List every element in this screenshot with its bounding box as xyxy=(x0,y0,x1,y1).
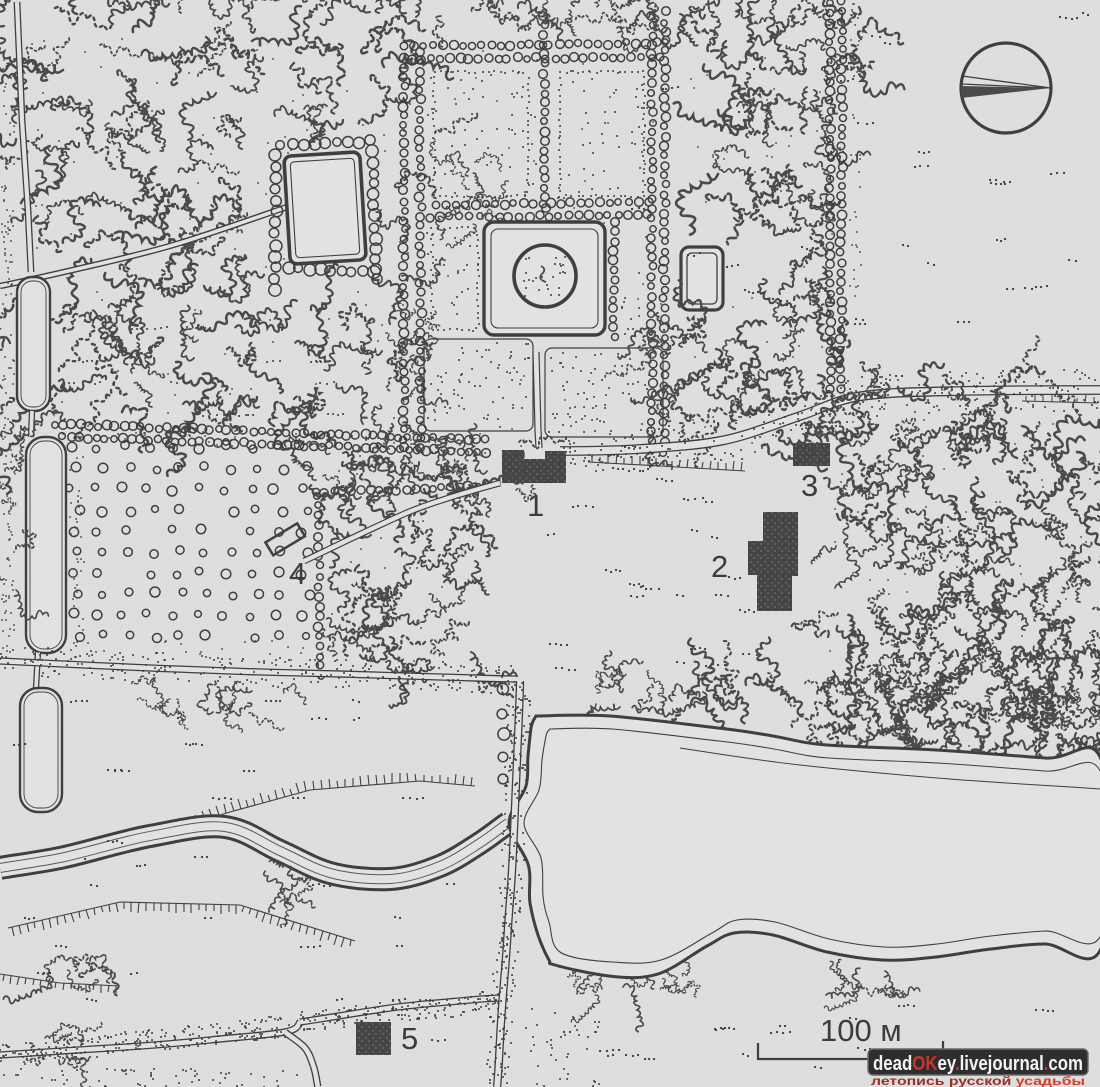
svg-text:2: 2 xyxy=(711,549,728,584)
svg-text:3: 3 xyxy=(801,468,818,503)
svg-text:deadOKey.livejournal.com: deadOKey.livejournal.com xyxy=(873,1052,1083,1075)
svg-text:4: 4 xyxy=(289,556,306,591)
svg-text:100 м: 100 м xyxy=(820,1013,902,1048)
svg-text:летопись русской усадьбы: летопись русской усадьбы xyxy=(871,1076,1085,1087)
svg-text:5: 5 xyxy=(401,1021,418,1056)
